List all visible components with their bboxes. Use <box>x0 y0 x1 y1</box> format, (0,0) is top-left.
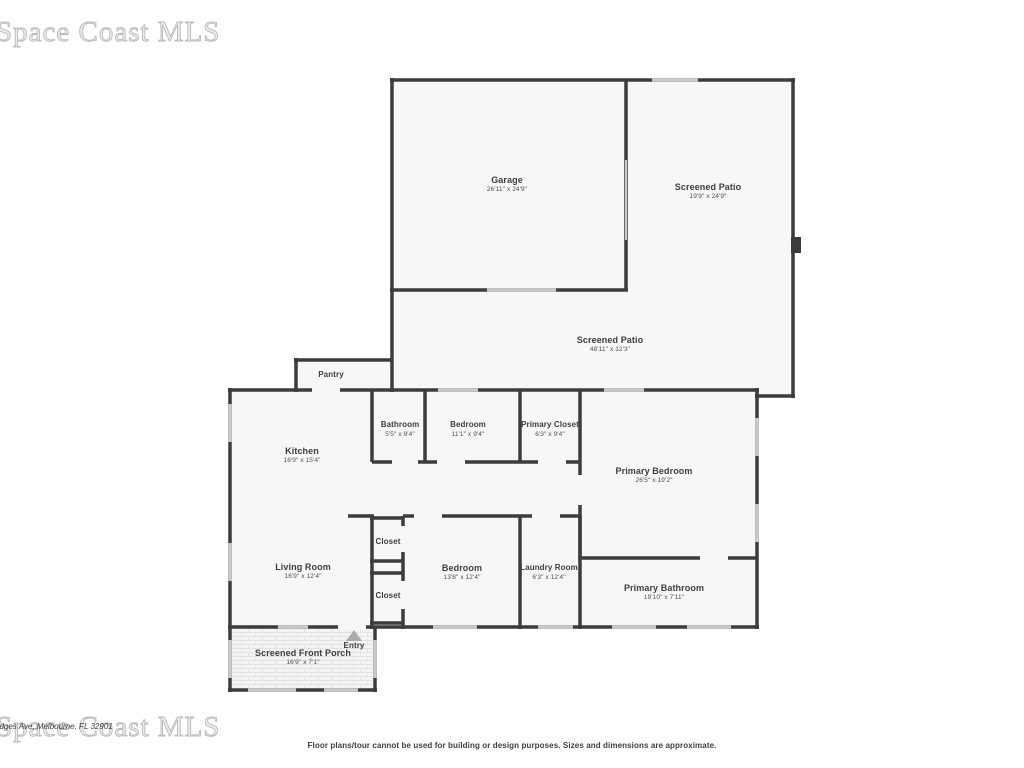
room-name: Primary Closet <box>521 420 579 430</box>
room-dims: 19'10" x 7'11" <box>624 593 704 602</box>
room-label-living-room: Living Room 16'9" x 12'4" <box>275 562 331 581</box>
room-name: Screened Patio <box>577 335 643 345</box>
room-name: Screened Patio <box>675 182 741 192</box>
room-dims: 5'5" x 9'4" <box>381 430 420 439</box>
room-label-laundry: Laundry Room 6'3" x 12'4" <box>520 563 578 582</box>
room-dims: 26'5" x 19'2" <box>615 476 692 485</box>
room-dims: 6'3" x 9'4" <box>521 430 579 439</box>
room-dims: 6'3" x 12'4" <box>520 573 578 582</box>
room-label-screened-patio-lower: Screened Patio 48'11" x 12'3" <box>577 335 643 354</box>
room-label-bedroom-bottom: Bedroom 13'8" x 12'4" <box>442 563 482 582</box>
room-name: Pantry <box>318 370 344 380</box>
room-label-garage: Garage 26'11" x 24'9" <box>487 175 527 194</box>
room-name: Screened Front Porch <box>255 648 351 658</box>
room-name: Closet <box>375 591 400 601</box>
room-dims: 11'1" x 9'4" <box>450 430 486 439</box>
room-name: Bathroom <box>381 420 420 430</box>
room-label-kitchen: Kitchen 16'9" x 15'4" <box>284 446 321 465</box>
room-dims: 16'9" x 7'1" <box>255 658 351 667</box>
room-name: Primary Bathroom <box>624 583 704 593</box>
room-name: Kitchen <box>284 446 321 456</box>
room-dims: 13'8" x 12'4" <box>442 573 482 582</box>
floorplan-page: Space Coast MLS Space Coast MLS odges Av… <box>0 0 1024 768</box>
room-name: Bedroom <box>450 420 486 430</box>
room-label-screened-patio-upper: Screened Patio 19'9" x 24'9" <box>675 182 741 201</box>
room-label-front-porch: Screened Front Porch 16'9" x 7'1" <box>255 648 351 667</box>
room-fills-layer <box>230 80 793 692</box>
room-label-primary-bathroom: Primary Bathroom 19'10" x 7'11" <box>624 583 704 602</box>
room-name: Entry <box>344 641 365 651</box>
listing-address: odges Ave, Melbourne, FL 32901 <box>0 722 113 731</box>
room-dims: 48'11" x 12'3" <box>577 345 643 354</box>
room-name: Primary Bedroom <box>615 466 692 476</box>
room-label-bathroom: Bathroom 5'5" x 9'4" <box>381 420 420 439</box>
room-label-pantry: Pantry <box>318 370 344 380</box>
room-dims: 16'9" x 15'4" <box>284 456 321 465</box>
room-name: Laundry Room <box>520 563 578 573</box>
room-label-primary-closet: Primary Closet 6'3" x 9'4" <box>521 420 579 439</box>
room-name: Living Room <box>275 562 331 572</box>
room-name: Closet <box>375 537 400 547</box>
room-name: Bedroom <box>442 563 482 573</box>
room-name: Garage <box>487 175 527 185</box>
room-dims: 16'9" x 12'4" <box>275 572 331 581</box>
room-label-bedroom-top: Bedroom 11'1" x 9'4" <box>450 420 486 439</box>
room-label-entry: Entry <box>344 641 365 651</box>
room-label-closet-upper: Closet <box>375 537 400 547</box>
disclaimer-text: Floor plans/tour cannot be used for buil… <box>308 741 717 750</box>
room-dims: 26'11" x 24'9" <box>487 185 527 194</box>
room-dims: 19'9" x 24'9" <box>675 192 741 201</box>
room-label-primary-bedroom: Primary Bedroom 26'5" x 19'2" <box>615 466 692 485</box>
floorplan-drawing <box>0 0 1024 768</box>
room-label-closet-lower: Closet <box>375 591 400 601</box>
